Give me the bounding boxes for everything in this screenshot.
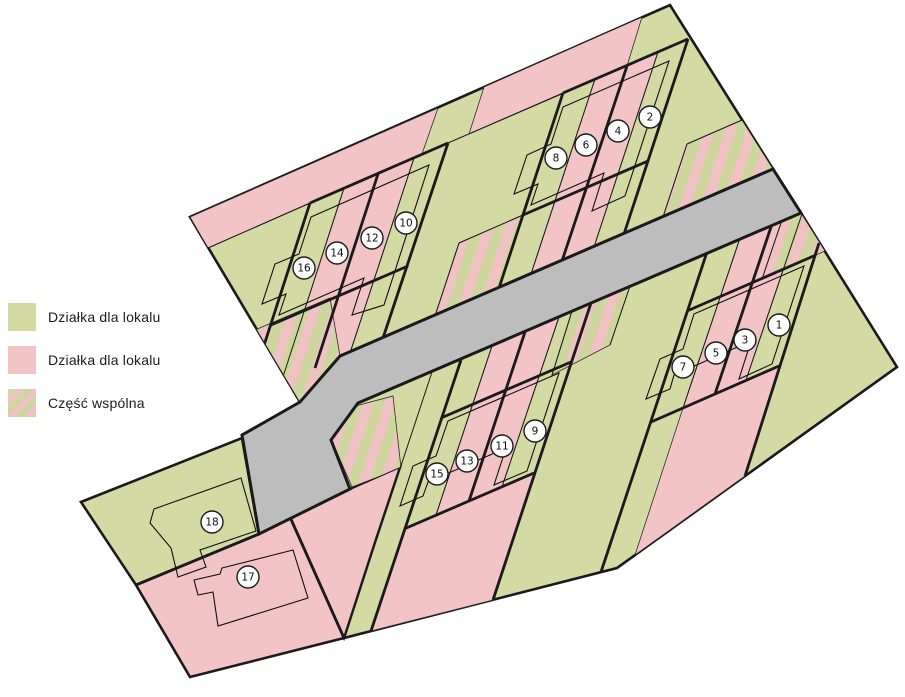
svg-text:7: 7 xyxy=(680,362,687,374)
svg-text:13: 13 xyxy=(460,456,473,468)
svg-text:12: 12 xyxy=(365,233,378,245)
legend-label: Działka dla lokalu xyxy=(48,309,161,325)
svg-text:1: 1 xyxy=(776,320,783,332)
svg-text:17: 17 xyxy=(241,572,254,584)
plot-marker-8: 8 xyxy=(545,147,567,169)
striped-swatch-icon xyxy=(8,389,36,417)
plot-marker-15: 15 xyxy=(426,463,448,485)
legend-item-green: Działka dla lokalu xyxy=(8,303,161,331)
svg-text:6: 6 xyxy=(583,140,590,152)
plot-marker-11: 11 xyxy=(491,435,513,457)
plot-marker-7: 7 xyxy=(672,356,694,378)
svg-text:16: 16 xyxy=(297,263,311,275)
green-swatch-icon xyxy=(8,303,36,331)
svg-text:4: 4 xyxy=(615,126,622,138)
svg-text:11: 11 xyxy=(495,441,508,453)
pink-swatch-icon xyxy=(8,346,36,374)
svg-text:9: 9 xyxy=(532,426,539,438)
plot-marker-1: 1 xyxy=(768,314,790,336)
svg-text:18: 18 xyxy=(205,517,218,529)
plot-marker-18: 18 xyxy=(201,511,223,533)
plot-marker-16: 16 xyxy=(293,257,315,279)
svg-text:14: 14 xyxy=(330,248,344,260)
plot-marker-14: 14 xyxy=(326,242,348,264)
plot-marker-3: 3 xyxy=(734,329,756,351)
legend-label: Działka dla lokalu xyxy=(48,352,161,368)
svg-text:5: 5 xyxy=(713,348,720,360)
plot-marker-2: 2 xyxy=(639,106,661,128)
plot-marker-6: 6 xyxy=(575,134,597,156)
plot-marker-12: 12 xyxy=(361,227,383,249)
plot-marker-10: 10 xyxy=(395,212,417,234)
svg-text:15: 15 xyxy=(430,469,443,481)
plot-marker-5: 5 xyxy=(705,342,727,364)
legend-item-striped: Część wspólna xyxy=(8,389,161,417)
legend: Działka dla lokalu Działka dla lokalu Cz… xyxy=(8,303,161,417)
svg-text:8: 8 xyxy=(553,153,560,165)
svg-text:10: 10 xyxy=(399,218,412,230)
plot-marker-4: 4 xyxy=(607,120,629,142)
legend-label: Część wspólna xyxy=(48,395,145,411)
svg-text:2: 2 xyxy=(647,112,654,124)
site-plan-page: 123456789101112131415161718 Działka dla … xyxy=(0,0,905,697)
plot-marker-13: 13 xyxy=(456,450,478,472)
svg-text:3: 3 xyxy=(742,335,749,347)
plot-marker-9: 9 xyxy=(524,420,546,442)
plot-marker-17: 17 xyxy=(237,566,259,588)
legend-item-pink: Działka dla lokalu xyxy=(8,346,161,374)
